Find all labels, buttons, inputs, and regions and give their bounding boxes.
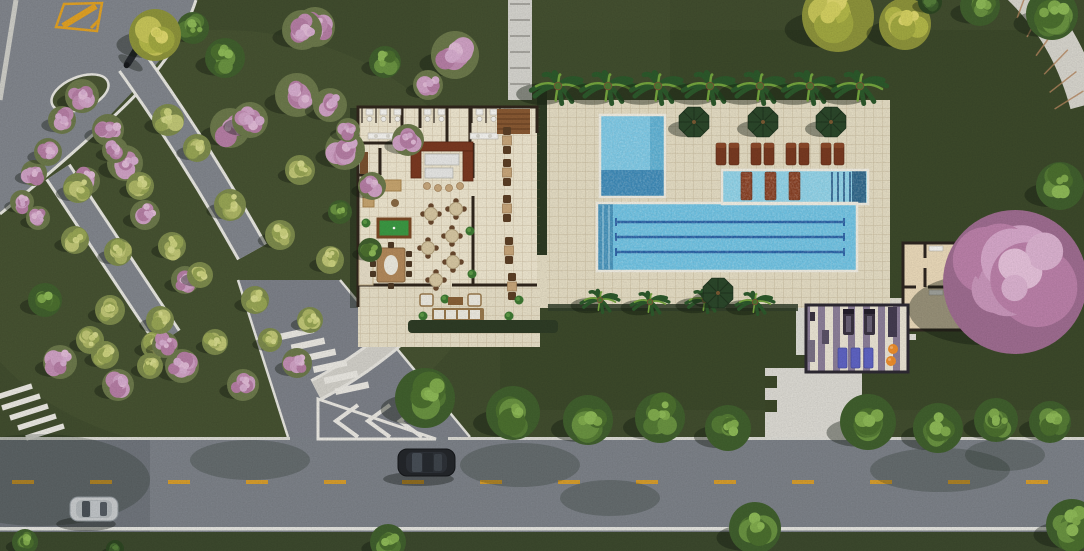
site-plan-stage: Aerial 3D-rendered site plan of a reside… — [0, 0, 1084, 551]
grain-overlay — [0, 0, 1084, 551]
site-plan-rendering: Aerial 3D-rendered site plan of a reside… — [0, 0, 1084, 551]
